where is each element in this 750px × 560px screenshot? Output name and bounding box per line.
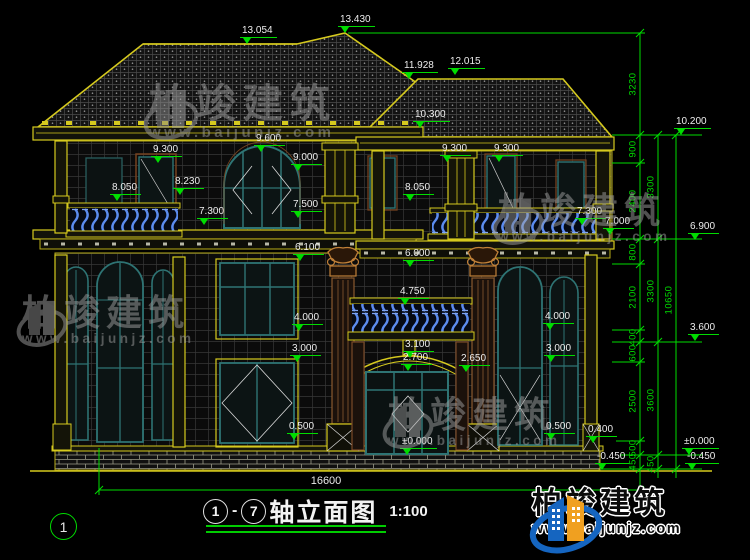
chain-dimension-label: 450 (646, 455, 657, 472)
door-f2-right (485, 154, 517, 212)
title-text: 轴立面图 (269, 493, 377, 529)
cad-elevation-drawing: 13.05413.43011.92812.01510.30010.2009.30… (0, 0, 750, 560)
window-f2-right (556, 160, 586, 210)
chain-dimension-label: 900 (628, 140, 639, 157)
chain-dimension-label: 2500 (628, 389, 639, 412)
chain-dimension-label: 400 (628, 328, 639, 345)
chain-dimension-label: 3230 (628, 72, 639, 95)
title-dash: - (232, 502, 237, 520)
plinth-brick-base (55, 450, 600, 470)
cornice-eave-right (356, 137, 614, 150)
chain-dimension-label: 600 (628, 344, 639, 361)
company-logo: 柏竣建筑 www.baijunjz.com (528, 487, 681, 537)
axis-bubble-1: 1 (50, 513, 77, 540)
axis-bubble-label: 1 (60, 519, 68, 535)
chain-dimension-label: 10650 (664, 286, 675, 315)
balcony-f2-left (66, 203, 182, 237)
chain-dimension-label: 3300 (646, 175, 657, 198)
chain-dimension-label: 2400 (628, 189, 639, 212)
company-logo-icon (528, 487, 612, 555)
title-axis-start-circle: 1 (203, 499, 228, 524)
chain-dimension-label: 3300 (646, 279, 657, 302)
title-scale: 1:100 (389, 503, 427, 520)
windows-f1-left (64, 262, 174, 442)
column-corinthian-right (467, 248, 499, 452)
chain-dimension-label: 3600 (646, 388, 657, 411)
total-width-dimension: 16600 (311, 475, 342, 487)
title-axis-end-circle: 7 (241, 499, 266, 524)
chain-dimension-label: 2100 (628, 285, 639, 308)
drawing-title: 1 - 7 轴立面图 1:100 (203, 493, 428, 529)
title-underline (206, 525, 386, 533)
balcony-entrance (348, 298, 474, 340)
windows-f1-right (498, 267, 578, 445)
chain-dimension-label: 450 (628, 453, 639, 470)
chain-dimension-label: 800 (628, 243, 639, 260)
entrance-door (366, 372, 448, 454)
